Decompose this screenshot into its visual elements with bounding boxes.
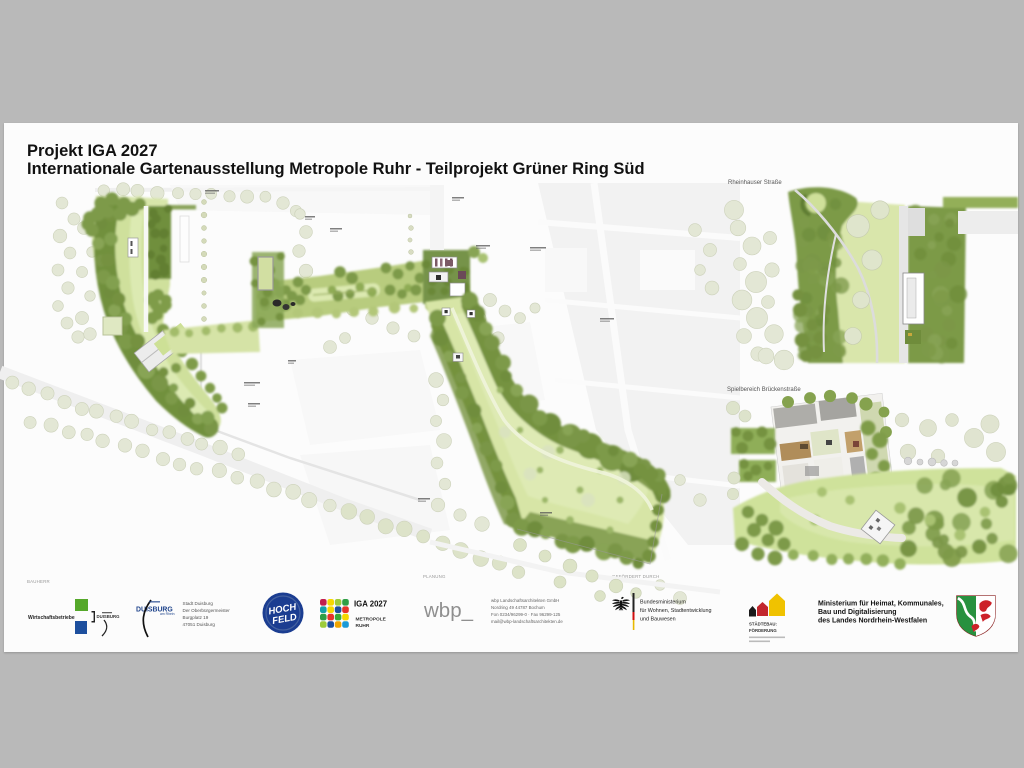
svg-text:47051 Duisburg: 47051 Duisburg xyxy=(183,622,216,627)
svg-text:METROPOLE: METROPOLE xyxy=(356,617,387,623)
svg-text:Ministerium für Heimat, Kommun: Ministerium für Heimat, Kommunales, xyxy=(818,600,944,607)
svg-text:Bundesministerium: Bundesministerium xyxy=(640,600,686,606)
svg-text:und Bauwesen: und Bauwesen xyxy=(640,617,676,623)
svg-text:Bau und Digitalisierung: Bau und Digitalisierung xyxy=(818,609,897,616)
svg-text:Fon 0234/96299-0 · Fax 96299-1: Fon 0234/96299-0 · Fax 96299-125 xyxy=(491,612,561,617)
svg-text:wbp Landschaftsarchitekten Gm: wbp Landschaftsarchitekten GmbH xyxy=(491,598,559,603)
svg-text:mail@wbp-landschaftsarchitekte: mail@wbp-landschaftsarchitekten.de xyxy=(491,619,563,624)
svg-text:RUHR: RUHR xyxy=(356,623,370,629)
svg-text:am Rhein: am Rhein xyxy=(160,612,175,616)
svg-text:Burgplatz 19: Burgplatz 19 xyxy=(183,615,209,620)
svg-text:DUISBURG: DUISBURG xyxy=(97,614,121,619)
svg-text:Spielbereich Brückenstraße: Spielbereich Brückenstraße xyxy=(727,387,801,393)
svg-text:Stadt Duisburg: Stadt Duisburg xyxy=(183,601,214,606)
svg-text:wbp_: wbp_ xyxy=(423,599,474,622)
svg-text:Der Oberbürgermeister: Der Oberbürgermeister xyxy=(183,608,231,613)
svg-text:Wirtschaftsbetriebe: Wirtschaftsbetriebe xyxy=(28,615,75,621)
svg-text:für Wohnen, Stadtentwicklung: für Wohnen, Stadtentwicklung xyxy=(640,608,712,614)
svg-text:FÖRDERUNG: FÖRDERUNG xyxy=(749,628,777,633)
svg-text:IGA 2027: IGA 2027 xyxy=(354,600,387,609)
svg-text:des Landes Nordrhein-Westfalen: des Landes Nordrhein-Westfalen xyxy=(818,618,927,625)
svg-text:Rheinhauser Straße: Rheinhauser Straße xyxy=(728,180,782,186)
svg-text:Nordring 49 44787 Boc: Nordring 49 44787 Bochum xyxy=(491,605,545,610)
svg-text:STÄDTEBAU:: STÄDTEBAU: xyxy=(749,622,777,627)
